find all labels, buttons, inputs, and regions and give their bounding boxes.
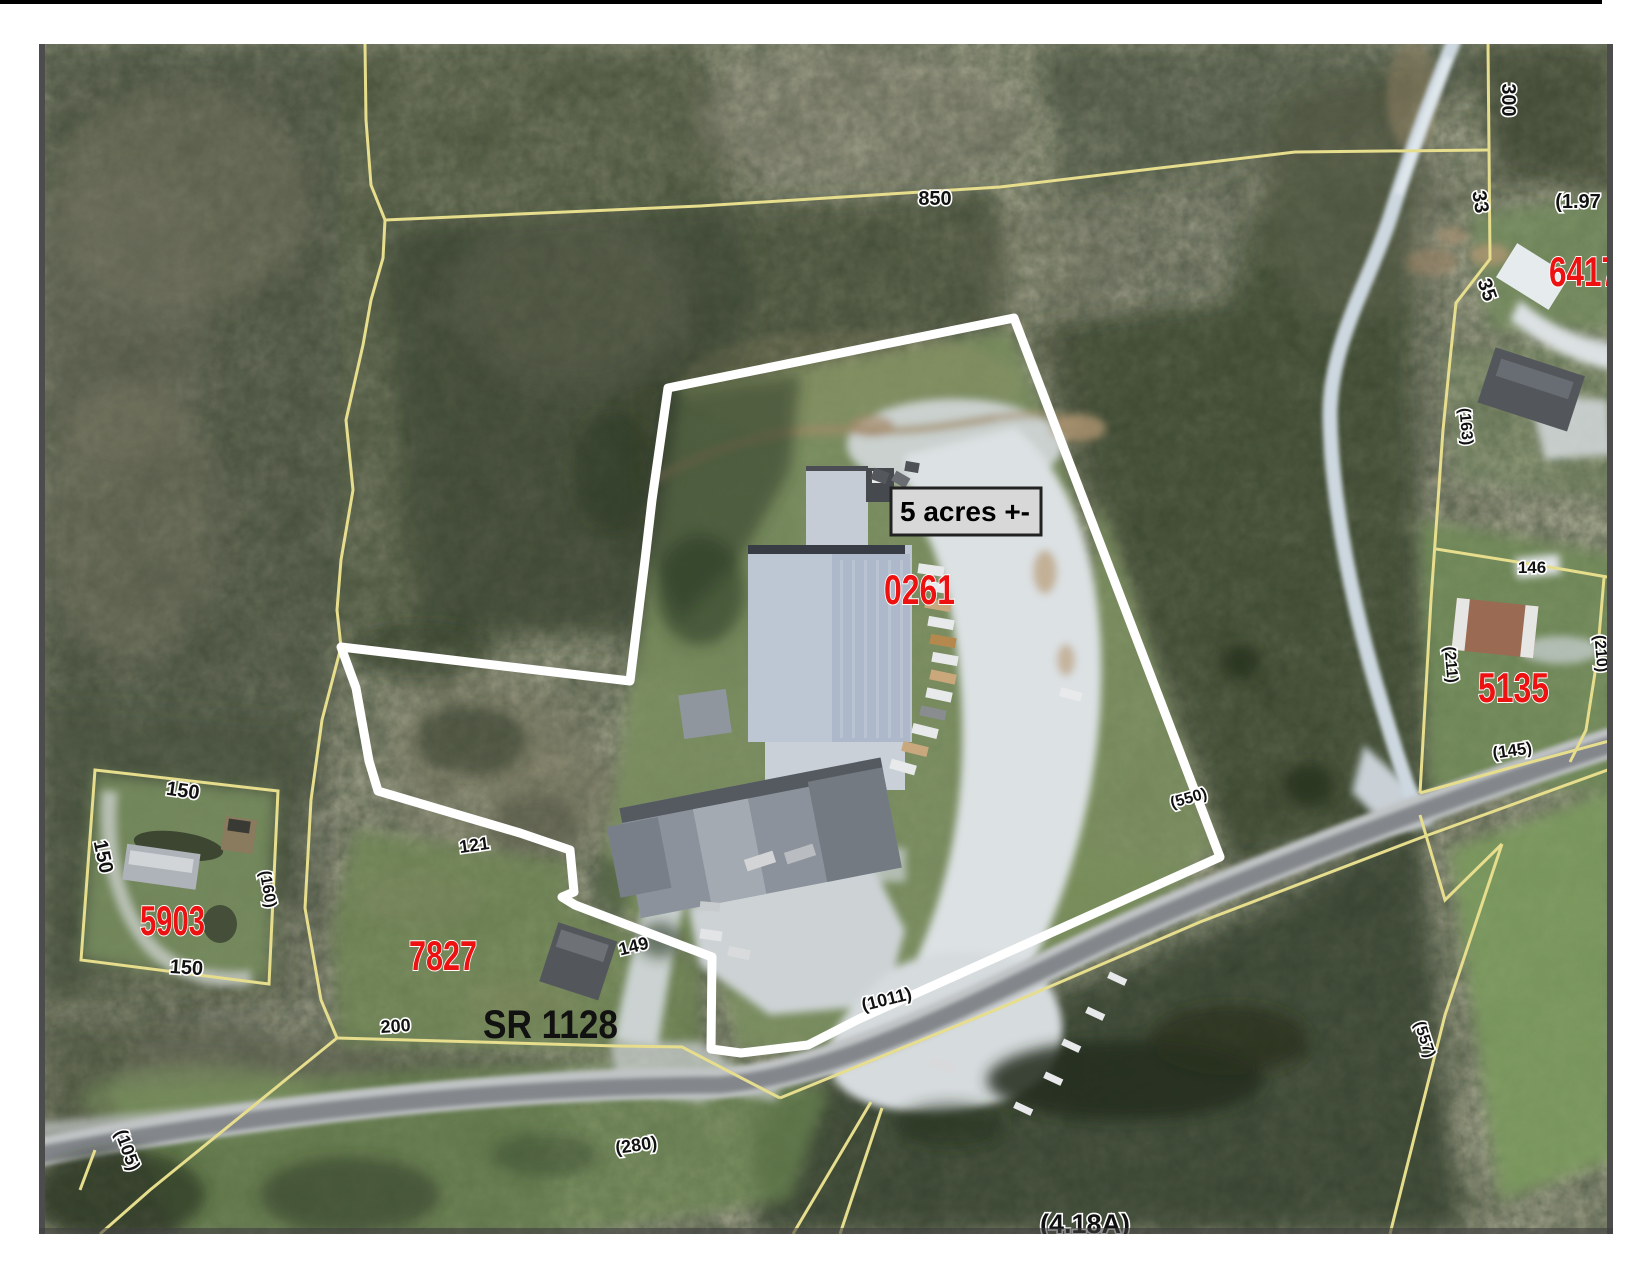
svg-text:121: 121 <box>458 833 491 857</box>
svg-text:300: 300 <box>1497 83 1519 116</box>
svg-text:33: 33 <box>1467 189 1493 215</box>
svg-text:850: 850 <box>918 188 951 210</box>
svg-text:(211): (211) <box>1440 646 1460 684</box>
svg-text:7827: 7827 <box>409 932 477 979</box>
svg-text:5903: 5903 <box>140 897 205 944</box>
svg-text:150: 150 <box>165 778 201 804</box>
svg-text:SR 1128: SR 1128 <box>483 1003 618 1047</box>
svg-text:200: 200 <box>380 1015 411 1037</box>
svg-text:5 acres +-: 5 acres +- <box>900 496 1030 527</box>
svg-text:5135: 5135 <box>1478 664 1549 711</box>
svg-text:(163): (163) <box>1455 407 1475 446</box>
svg-text:0261: 0261 <box>884 566 955 613</box>
svg-text:146: 146 <box>1518 558 1546 577</box>
svg-text:(1.97: (1.97 <box>1555 191 1601 213</box>
svg-text:150: 150 <box>169 956 204 980</box>
